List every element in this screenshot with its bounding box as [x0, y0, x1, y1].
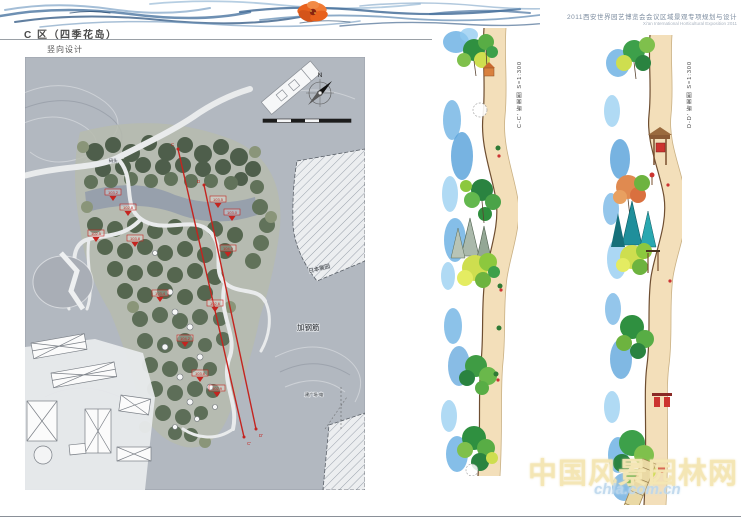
svg-text:103.2: 103.2 — [108, 190, 119, 195]
section-end-d2: D' — [259, 433, 263, 438]
north-label: N — [318, 72, 323, 79]
svg-text:102.9: 102.9 — [212, 386, 223, 391]
header-rule — [0, 39, 432, 40]
map-label-plaza: 建广场·电 — [305, 391, 324, 398]
design-sheet: C 区（四季花岛） 竖向设计 2011西安世界园艺博览会会议区域景观专项规划与设… — [0, 0, 741, 522]
svg-text:103.6: 103.6 — [195, 371, 206, 376]
scale-bar — [263, 119, 351, 122]
svg-text:102.8: 102.8 — [123, 205, 134, 210]
section-end-c2: C' — [247, 441, 251, 446]
map-label-dock: 码头 — [109, 157, 117, 164]
section-d-label: D-D' 断面图 S=1:300 — [686, 32, 694, 128]
svg-text:102.6: 102.6 — [210, 301, 221, 306]
west-mound — [33, 256, 93, 308]
sheet-subtitle: 竖向设计 — [47, 44, 83, 55]
hatched-area-south — [323, 413, 365, 490]
section-c-drawing — [440, 28, 518, 476]
site-plan: 日本展园 加钢筋 建广场·电 码头 C C' D D' 103.2 102.8 … — [25, 57, 365, 490]
svg-text:104.0: 104.0 — [223, 246, 234, 251]
svg-text:103.4: 103.4 — [155, 291, 166, 296]
svg-text:103.5: 103.5 — [213, 197, 224, 202]
svg-text:103.0: 103.0 — [227, 210, 238, 215]
svg-text:103.8: 103.8 — [130, 236, 141, 241]
project-title-en: Xi'an International Horticultural Exposi… — [477, 21, 737, 26]
svg-text:104.2: 104.2 — [180, 336, 191, 341]
flower-icon — [294, 0, 332, 26]
bottom-rule — [0, 516, 741, 517]
section-d-drawing — [602, 35, 682, 505]
map-label-rebar: 加钢筋 — [297, 322, 320, 332]
project-title: 2011西安世界园艺博览会会议区域景观专项规划与设计 — [477, 11, 737, 21]
svg-text:102.5: 102.5 — [91, 231, 102, 236]
